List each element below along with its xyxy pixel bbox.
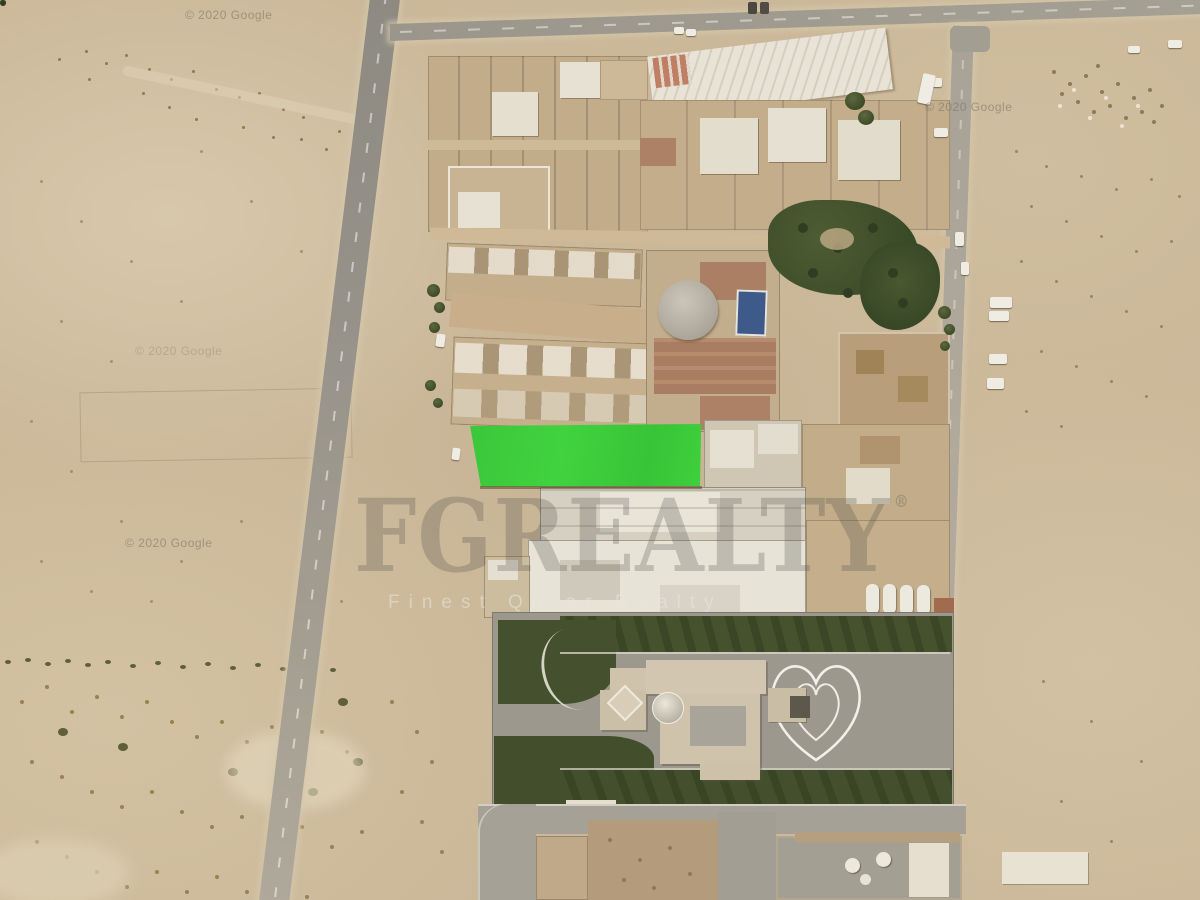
parked-van — [987, 378, 1004, 389]
car-on-road — [435, 334, 446, 348]
dark-vehicle — [760, 2, 769, 14]
storage-tank — [917, 585, 930, 615]
satellite-map-image: © 2020 Google © 2020 Google © 2020 Googl… — [0, 0, 1200, 900]
brand-tagline-watermark: Finest Qatar Realty — [388, 592, 723, 614]
house-row-units — [454, 343, 651, 380]
court-trim — [795, 832, 960, 842]
palace-building-main — [646, 660, 766, 694]
median-tree — [940, 341, 950, 351]
dome-villa-compound — [646, 250, 780, 432]
palm-shadows — [0, 0, 6, 6]
white-villa — [768, 108, 826, 162]
street-tree — [429, 322, 440, 333]
fountain-sculpture — [860, 874, 871, 885]
white-building-east-road — [1002, 852, 1088, 884]
courtyard — [898, 376, 928, 402]
dome-roof — [658, 280, 718, 340]
dark-vehicle — [748, 2, 757, 14]
car-on-right-road — [961, 262, 969, 275]
palm-grove — [860, 242, 940, 330]
lot-speckles — [608, 838, 612, 842]
vacant-lot — [588, 820, 718, 900]
terracotta-house — [640, 138, 676, 166]
palace-building-wing — [700, 764, 760, 780]
sand-patch-corner — [0, 838, 130, 900]
sand-track — [122, 65, 378, 129]
storage-tank — [900, 585, 913, 615]
median-tree — [938, 306, 951, 319]
garden-curb-line — [560, 652, 950, 654]
tree-clump — [858, 110, 874, 125]
courtyard-compound — [838, 332, 950, 432]
striped-terracotta-roof — [652, 54, 691, 88]
car-on-top-road — [1168, 40, 1182, 48]
car-on-right-road — [955, 232, 964, 246]
parked-van — [990, 297, 1012, 308]
grove-sand-gap — [820, 228, 854, 250]
brand-watermark-text: FGREALTY — [354, 477, 890, 595]
white-villa — [700, 118, 758, 174]
street-tree — [433, 398, 443, 408]
empty-lot-outline — [79, 388, 352, 463]
walled-compound — [448, 166, 550, 236]
road-junction-patch — [950, 26, 990, 52]
white-villa — [838, 120, 900, 180]
top-road-centerline — [400, 4, 1200, 33]
street-tree — [425, 380, 436, 391]
google-copyright-watermark: © 2020 Google — [925, 100, 1012, 114]
palace-courtyard — [690, 706, 746, 746]
fountain-sculpture — [876, 852, 891, 867]
street-curve-left — [478, 804, 536, 900]
median-tree — [944, 324, 955, 335]
bottom-houses — [536, 836, 588, 900]
brand-registered-mark: ® — [894, 492, 910, 512]
compound-house — [458, 192, 500, 228]
white-villa — [560, 62, 600, 98]
street-vertical — [718, 812, 776, 900]
street-tree — [434, 302, 445, 313]
alley — [428, 140, 648, 150]
car-on-top-road — [1128, 46, 1140, 53]
google-copyright-watermark: © 2020 Google — [185, 8, 272, 22]
tree-clump — [845, 92, 865, 110]
white-villa — [492, 92, 538, 136]
car-on-road — [451, 448, 460, 461]
house-row-units — [448, 247, 641, 280]
white-roof — [710, 430, 754, 468]
white-villa — [600, 60, 648, 100]
fountain-sculpture — [845, 858, 860, 873]
heart-center-slot — [790, 696, 810, 718]
white-roof — [758, 424, 798, 454]
swimming-pool — [735, 289, 768, 336]
brand-watermark: FGREALTY® — [354, 486, 906, 586]
parked-van — [989, 311, 1009, 321]
terracotta-roof-large — [654, 338, 776, 394]
house-row-units — [453, 389, 650, 424]
car-on-top-road — [674, 27, 684, 34]
house-row — [451, 337, 654, 432]
white-building-bottom-right — [908, 842, 950, 898]
courtyard — [856, 350, 884, 374]
car-on-top-road — [686, 29, 696, 36]
google-copyright-watermark: © 2020 Google — [125, 536, 212, 550]
parked-car — [934, 128, 948, 137]
google-copyright-watermark: © 2020 Google — [135, 344, 222, 358]
parked-van — [989, 354, 1007, 364]
palace-dome — [652, 692, 684, 724]
courtyard — [860, 436, 900, 464]
top-road — [390, 0, 1200, 41]
street-tree — [427, 284, 440, 297]
